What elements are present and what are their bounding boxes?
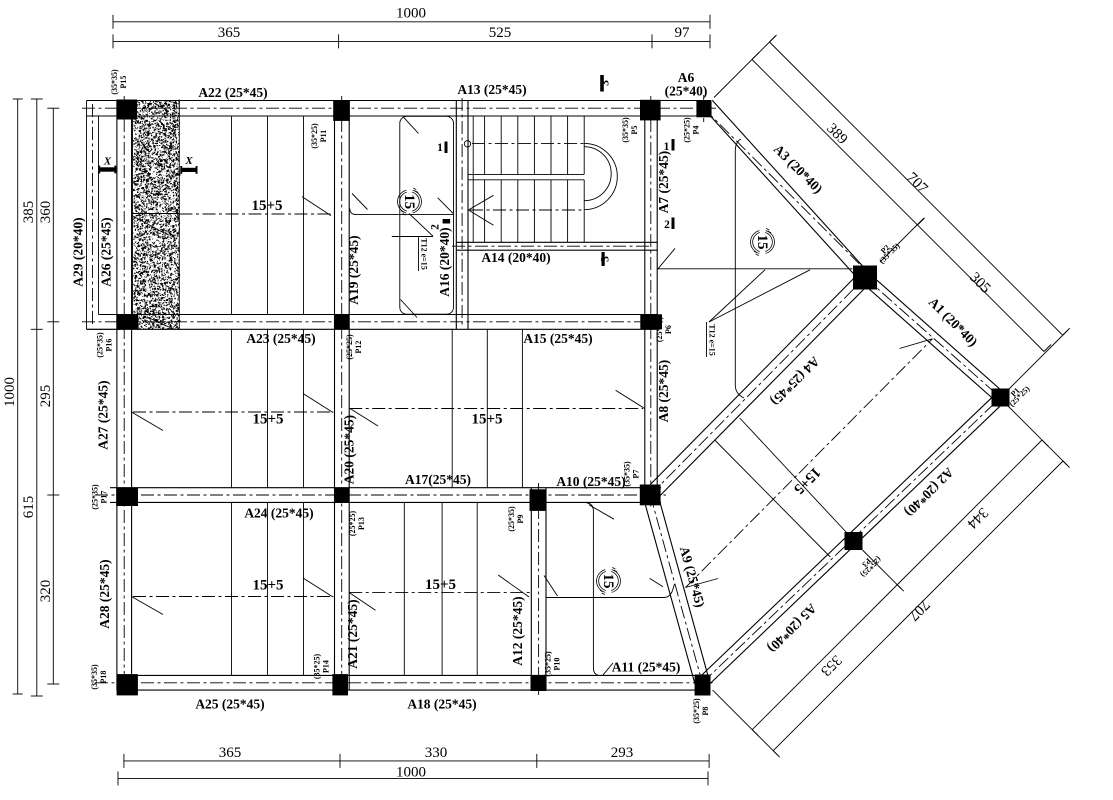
svg-text:P18: P18 bbox=[99, 671, 108, 684]
svg-text:A11 (25*45): A11 (25*45) bbox=[612, 660, 681, 675]
svg-text:(35*25): (35*25) bbox=[310, 123, 319, 149]
svg-text:97: 97 bbox=[675, 25, 691, 41]
svg-text:A14 (20*40): A14 (20*40) bbox=[481, 250, 550, 265]
svg-text:15: 15 bbox=[754, 235, 770, 250]
svg-text:A29 (20*40): A29 (20*40) bbox=[71, 217, 86, 286]
svg-text:15+5: 15+5 bbox=[425, 577, 456, 593]
svg-text:A21 (25*45): A21 (25*45) bbox=[345, 599, 360, 668]
svg-text:P13: P13 bbox=[357, 517, 366, 530]
svg-text:15: 15 bbox=[401, 194, 417, 209]
svg-text:X: X bbox=[184, 155, 193, 167]
svg-text:P7: P7 bbox=[632, 470, 641, 479]
svg-text:A15 (25*45): A15 (25*45) bbox=[523, 331, 592, 346]
svg-text:A26 (25*45): A26 (25*45) bbox=[99, 217, 114, 286]
svg-text:15+5: 15+5 bbox=[252, 578, 283, 594]
svg-text:(25*25): (25*25) bbox=[345, 334, 354, 360]
svg-text:360: 360 bbox=[38, 201, 54, 224]
svg-text:(25*40): (25*40) bbox=[665, 84, 708, 99]
svg-text:A10 (25*45): A10 (25*45) bbox=[556, 474, 625, 489]
svg-text:A16 (20*40): A16 (20*40) bbox=[437, 227, 452, 296]
svg-text:(35*35): (35*35) bbox=[90, 664, 99, 690]
svg-text:X: X bbox=[103, 156, 112, 168]
svg-text:A25 (25*45): A25 (25*45) bbox=[195, 697, 264, 712]
svg-text:P6: P6 bbox=[664, 325, 673, 334]
svg-text:1: 1 bbox=[437, 142, 443, 154]
svg-text:320: 320 bbox=[38, 580, 54, 603]
svg-text:293: 293 bbox=[611, 745, 634, 761]
svg-text:T12 e=15: T12 e=15 bbox=[708, 324, 717, 355]
svg-text:(35*35): (35*35) bbox=[110, 69, 119, 95]
svg-text:2: 2 bbox=[430, 224, 442, 230]
svg-text:(25*35): (25*35) bbox=[655, 317, 664, 343]
svg-text:15+5: 15+5 bbox=[251, 198, 282, 214]
svg-text:(35*35): (35*35) bbox=[621, 117, 630, 143]
svg-text:P4: P4 bbox=[692, 126, 701, 135]
svg-text:P14: P14 bbox=[322, 660, 331, 673]
svg-text:P11: P11 bbox=[319, 130, 328, 142]
svg-text:(25*25): (25*25) bbox=[348, 511, 357, 537]
svg-text:15+5: 15+5 bbox=[252, 412, 283, 428]
svg-text:P9: P9 bbox=[516, 515, 525, 524]
svg-text:A8 (25*45): A8 (25*45) bbox=[656, 360, 671, 423]
svg-text:P12: P12 bbox=[354, 341, 363, 354]
svg-text:A28 (25*45): A28 (25*45) bbox=[97, 559, 112, 628]
svg-text:A22 (25*45): A22 (25*45) bbox=[198, 85, 267, 100]
svg-text:A12 (25*45): A12 (25*45) bbox=[510, 596, 525, 665]
svg-text:A17(25*45): A17(25*45) bbox=[405, 472, 471, 487]
svg-text:P10: P10 bbox=[553, 658, 562, 671]
svg-text:525: 525 bbox=[489, 25, 512, 41]
svg-text:(35*25): (35*25) bbox=[692, 698, 701, 724]
svg-text:3: 3 bbox=[600, 256, 612, 262]
svg-text:A19 (25*45): A19 (25*45) bbox=[346, 235, 361, 304]
svg-text:1000: 1000 bbox=[2, 377, 18, 407]
svg-text:15+5: 15+5 bbox=[471, 412, 502, 428]
svg-text:385: 385 bbox=[21, 201, 37, 224]
svg-text:1000: 1000 bbox=[396, 765, 426, 781]
svg-text:365: 365 bbox=[219, 745, 242, 761]
svg-text:A18 (25*45): A18 (25*45) bbox=[407, 697, 476, 712]
svg-text:A13 (25*45): A13 (25*45) bbox=[457, 82, 526, 97]
svg-text:1: 1 bbox=[664, 141, 670, 153]
svg-text:T12 e=15: T12 e=15 bbox=[420, 238, 429, 269]
svg-text:(35*25): (35*25) bbox=[544, 651, 553, 677]
svg-text:(25*35): (25*35) bbox=[507, 506, 516, 532]
svg-text:P16: P16 bbox=[105, 339, 114, 352]
svg-text:P8: P8 bbox=[701, 707, 710, 716]
svg-text:(35*25): (35*25) bbox=[313, 654, 322, 680]
svg-text:P5: P5 bbox=[630, 126, 639, 135]
svg-text:(25*35): (25*35) bbox=[96, 332, 105, 358]
svg-text:3: 3 bbox=[600, 80, 612, 86]
svg-text:365: 365 bbox=[218, 25, 241, 41]
svg-text:P15: P15 bbox=[119, 76, 128, 89]
svg-text:615: 615 bbox=[21, 496, 37, 519]
svg-text:295: 295 bbox=[38, 385, 54, 408]
svg-text:(25*25): (25*25) bbox=[683, 117, 692, 143]
svg-text:A20 (25*45): A20 (25*45) bbox=[342, 415, 357, 484]
svg-text:330: 330 bbox=[425, 745, 448, 761]
svg-text:A23 (25*45): A23 (25*45) bbox=[246, 331, 315, 346]
svg-text:A7 (25*45): A7 (25*45) bbox=[656, 151, 671, 214]
svg-text:15: 15 bbox=[600, 574, 616, 589]
svg-text:1000: 1000 bbox=[396, 6, 426, 22]
svg-text:A27 (25*45): A27 (25*45) bbox=[96, 380, 111, 449]
svg-text:(25*35): (25*35) bbox=[91, 484, 100, 510]
svg-text:P17: P17 bbox=[100, 491, 109, 504]
svg-text:2: 2 bbox=[664, 219, 670, 231]
